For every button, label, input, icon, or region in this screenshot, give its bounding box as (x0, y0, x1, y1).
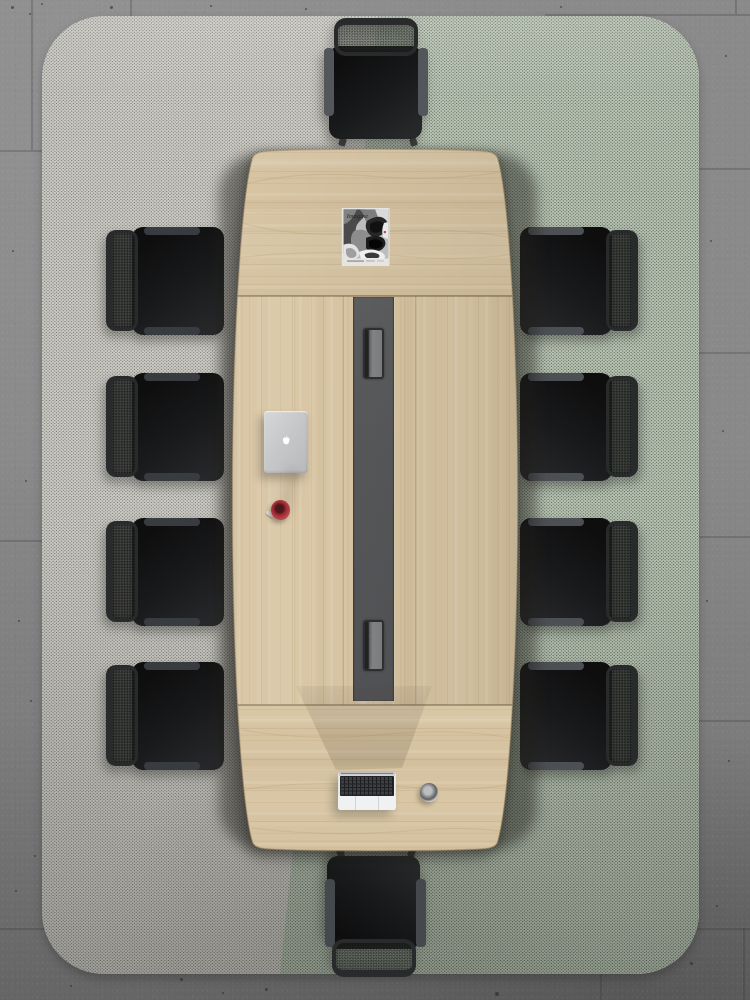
svg-text:Imagine: Imagine (346, 213, 369, 220)
